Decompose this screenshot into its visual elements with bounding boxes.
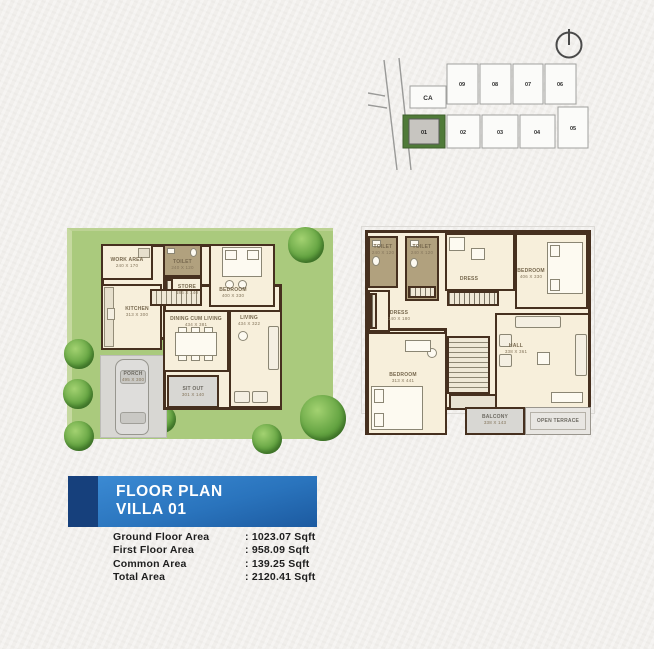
armchair — [499, 354, 512, 367]
tree-icon — [288, 227, 324, 263]
sofa — [268, 326, 279, 370]
toilet-2-label: TOILET 240 X 120 — [405, 244, 439, 256]
kitchen-sink — [107, 308, 115, 320]
toilet-ground-label: TOILET 240 X 120 — [164, 259, 201, 271]
bed-icon — [222, 247, 262, 277]
car-rear-window — [120, 412, 146, 424]
first-floor-plan: TOILET 240 X 120 TOILET 240 X 120 DRESS … — [365, 228, 595, 440]
banner-title: FLOOR PLAN VILLA 01 — [98, 476, 317, 527]
coffee-table — [238, 331, 248, 341]
kitchen-label: KITCHEN 313 X 300 — [116, 306, 158, 318]
road-lines — [368, 58, 411, 170]
tree-icon — [252, 424, 282, 454]
plot-06-label: 06 — [557, 82, 563, 88]
area-summary: Ground Floor Area : 1023.07 Sqft First F… — [113, 531, 343, 585]
wardrobe — [449, 237, 465, 251]
banner-title-line2: VILLA 01 — [116, 501, 317, 519]
plot-03-label: 03 — [497, 130, 503, 136]
plot-09-label: 09 — [459, 82, 465, 88]
dresser — [405, 340, 431, 352]
bed-icon — [371, 386, 423, 430]
north-compass-icon — [551, 26, 587, 62]
bedroom-2-label: BEDROOM 313 X 441 — [381, 372, 425, 384]
plot-05-label: 05 — [570, 126, 576, 132]
dining-chair — [191, 355, 200, 361]
pillow — [225, 250, 237, 260]
living-label: LIVING 434 X 322 — [232, 315, 266, 327]
work-area-label: WORK AREA 240 X 170 — [103, 257, 151, 269]
sofa-seat — [234, 391, 250, 403]
plot-04-label: 04 — [534, 130, 541, 136]
dining-table — [175, 332, 217, 356]
banner-accent-stripe — [68, 476, 98, 527]
ground-floor-plan: PORCH 495 X 300 WORK AREA 240 X 170 TOIL… — [67, 228, 333, 439]
area-label: Total Area — [113, 571, 245, 584]
area-value: : 1023.07 Sqft — [245, 531, 316, 544]
pillow — [550, 279, 560, 291]
plot-01-label: 01 — [421, 130, 427, 136]
tree-icon — [300, 395, 346, 441]
sofa-seat — [252, 391, 268, 403]
dining-chair — [191, 327, 200, 333]
toilet-1-label: TOILET 240 X 120 — [368, 244, 398, 256]
tree-icon — [63, 379, 93, 409]
closet-strip — [447, 291, 499, 306]
plot-ca-label: CA — [423, 95, 433, 102]
store-label: STORE 186 X 140 — [172, 284, 202, 296]
sitout-label: SIT OUT 301 X 140 — [169, 386, 217, 398]
dining-chair — [178, 355, 187, 361]
toilet-basin — [167, 248, 175, 254]
area-label: Ground Floor Area — [113, 531, 245, 544]
toilet-wc — [190, 248, 197, 257]
area-value: : 2120.41 Sqft — [245, 571, 316, 584]
banner-title-line1: FLOOR PLAN — [116, 483, 317, 501]
balcony-label: BALCONY 338 X 143 — [467, 414, 523, 426]
dress-shelves — [370, 293, 377, 329]
dining-chair — [204, 327, 213, 333]
area-row-ground: Ground Floor Area : 1023.07 Sqft — [113, 531, 343, 544]
bedroom-ground-label: BEDROOM 400 X 330 — [211, 287, 255, 299]
tree-icon — [64, 339, 94, 369]
area-label: First Floor Area — [113, 544, 245, 557]
tv-unit — [551, 392, 583, 403]
terrace-label: OPEN TERRACE — [527, 418, 589, 424]
title-banner: FLOOR PLAN VILLA 01 — [68, 476, 317, 527]
hall-label: HALL 338 X 361 — [499, 343, 533, 355]
tree-icon — [64, 421, 94, 451]
area-row-total: Total Area : 2120.41 Sqft — [113, 571, 343, 584]
area-value: : 139.25 Sqft — [245, 558, 309, 571]
toilet-wc — [372, 256, 380, 266]
staircase-first — [447, 336, 490, 394]
plot-08-label: 08 — [492, 82, 498, 88]
shower-area — [408, 286, 436, 298]
plots-bottom-row — [447, 107, 588, 148]
bed-icon — [547, 242, 583, 294]
plot-02-label: 02 — [460, 130, 466, 136]
area-row-common: Common Area : 139.25 Sqft — [113, 558, 343, 571]
bedroom-1-label: BEDROOM 406 X 330 — [511, 268, 551, 280]
dress-1-label: DRESS — [449, 276, 489, 282]
sofa — [515, 316, 561, 328]
dining-chair — [204, 355, 213, 361]
pillow — [550, 245, 560, 257]
porch-label: PORCH 495 X 300 — [102, 371, 164, 383]
wardrobe — [471, 248, 485, 260]
center-table — [537, 352, 550, 365]
area-label: Common Area — [113, 558, 245, 571]
plot-07-label: 07 — [525, 82, 531, 88]
dining-chair — [178, 327, 187, 333]
pillow — [374, 413, 384, 427]
kitchen-counter — [104, 287, 114, 347]
toilet-wc — [410, 258, 418, 268]
dining-label: DINING CUM LIVING 434 X 381 — [165, 316, 227, 328]
area-value: : 958.09 Sqft — [245, 544, 309, 557]
pillow — [247, 250, 259, 260]
dress-2-label: DRESS 140 X 180 — [381, 310, 417, 322]
pillow — [374, 389, 384, 403]
sofa — [575, 334, 587, 376]
area-row-first: First Floor Area : 958.09 Sqft — [113, 544, 343, 557]
